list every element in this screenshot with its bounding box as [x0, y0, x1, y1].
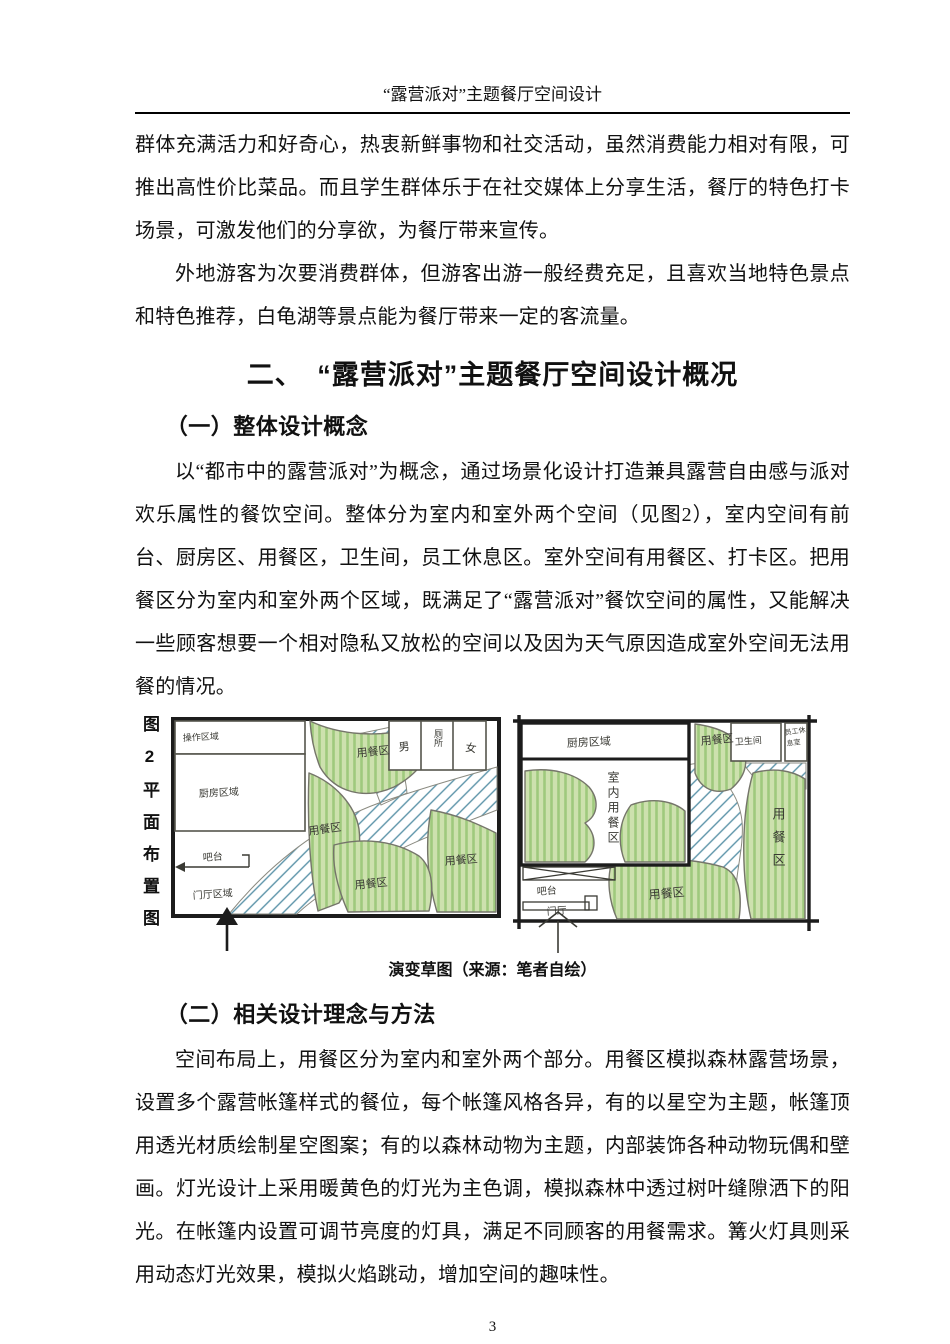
right-plan-dining-right-label: 用餐区 — [770, 807, 786, 876]
left-plan-male-label: 男 — [398, 740, 410, 754]
section-heading: 二、 “露营派对”主题餐厅空间设计概况 — [135, 355, 850, 395]
right-plan-kitchen-label: 厨房区域 — [566, 735, 611, 750]
left-plan-dining-right-label: 用餐区 — [444, 851, 478, 868]
figure-caption: 演变草图（来源：笔者自绘） — [135, 959, 850, 983]
document-page: “露营派对”主题餐厅空间设计 群体充满活力和好奇心，热衷新鲜事物和社交活动，虽然… — [0, 0, 950, 1344]
subsection-2-body: 空间布局上，用餐区分为室内和室外两个部分。用餐区模拟森林露营场景，设置多个露营帐… — [135, 1039, 850, 1297]
subsection-1-body: 以“都市中的露营派对”为概念，通过场景化设计打造兼具露营自由感与派对欢乐属性的餐… — [135, 451, 850, 709]
intro-paragraph-2: 外地游客为次要消费群体，但游客出游一般经费充足，且喜欢当地特色景点和特色推荐，白… — [135, 253, 850, 339]
floor-plan-sketch-left: 操作区域 厨房区域 男 厕所 女 用餐区 用餐区 用餐区 用餐区 吧台 — [169, 715, 503, 955]
subsection-1-heading: （一）整体设计概念 — [135, 411, 850, 443]
right-plan-dining-bottom-label: 用餐区 — [648, 884, 685, 902]
left-plan-toilet-label: 厕所 — [432, 729, 443, 748]
floor-plan-sketch-right: 厨房区域 室内用餐区 卫生间 员工休 息室 用餐区 用餐区 用餐区 吧台 — [513, 715, 821, 955]
right-plan-indoor-dining-label: 室内用餐区 — [606, 770, 620, 846]
page-number: 3 — [135, 1319, 850, 1336]
running-header-title: “露营派对”主题餐厅空间设计 — [383, 85, 602, 104]
intro-paragraph-1: 群体充满活力和好奇心，热衷新鲜事物和社交活动，虽然消费能力相对有限，可推出高性价… — [135, 124, 850, 253]
figure-2: 图2平面布置图 — [135, 715, 850, 955]
figure-side-label: 图2平面布置图 — [135, 715, 163, 951]
left-plan-female-label: 女 — [465, 740, 478, 755]
running-header: “露营派对”主题餐厅空间设计 — [135, 84, 850, 114]
subsection-2-heading: （二）相关设计理念与方法 — [135, 999, 850, 1031]
